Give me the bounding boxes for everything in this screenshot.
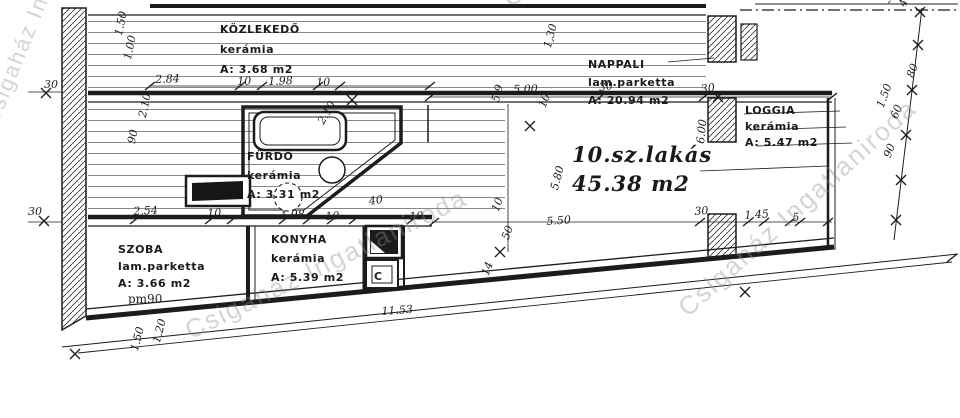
room-label-line: kerámia bbox=[745, 119, 818, 135]
room-label-line: KONYHA bbox=[271, 230, 344, 249]
dimension-label: 10 bbox=[325, 209, 340, 223]
dimension-label: 5 bbox=[792, 211, 800, 224]
room-label-line: FÜRDŐ bbox=[247, 147, 320, 166]
floor-plan: 10.sz.lakás 45.38 m2 Csigaház Ingatlanir… bbox=[0, 0, 960, 418]
dimension-label: 1.98 bbox=[280, 208, 305, 222]
dimension-label: 6.00 bbox=[694, 119, 709, 145]
pier bbox=[708, 16, 736, 62]
apartment-title: 10.sz.lakás 45.38 m2 bbox=[572, 140, 712, 198]
room-label-szoba: SZOBAlam.parkettaA: 3.66 m2 bbox=[118, 241, 205, 292]
room-label-line: SZOBA bbox=[118, 241, 205, 258]
apartment-area: 45.38 m2 bbox=[572, 169, 712, 198]
dimension-label: 10 bbox=[316, 76, 330, 89]
dimension-label: 10 bbox=[207, 206, 222, 220]
parapet-height-label: pm90 bbox=[128, 292, 162, 306]
right-diagonal-dim-line bbox=[894, 8, 922, 240]
bathtub-icon bbox=[254, 112, 346, 150]
left-exterior-wall bbox=[62, 8, 86, 330]
dimension-label: 30 bbox=[44, 78, 58, 91]
dimension-label: 2.84 bbox=[155, 72, 180, 86]
room-label-line: kerámia bbox=[220, 40, 300, 60]
room-label-line: A: 3.31 m2 bbox=[247, 185, 320, 204]
room-label-line: A: 3.66 m2 bbox=[118, 275, 205, 292]
room-label-line: LOGGIA bbox=[745, 103, 818, 119]
dimension-label: 30 bbox=[598, 79, 614, 94]
dimension-label: 1.45 bbox=[744, 207, 769, 222]
washbasin-icon bbox=[186, 176, 250, 206]
room-label-line: A: 5.39 m2 bbox=[271, 268, 344, 287]
dimension-label: 30 bbox=[28, 205, 42, 218]
room-label-line: NAPPALI bbox=[588, 56, 675, 74]
dimension-label: 30 bbox=[700, 81, 716, 96]
dimension-label: 11.53 bbox=[381, 303, 413, 318]
dimension-label: 5,00 bbox=[513, 82, 538, 96]
pier bbox=[708, 214, 736, 258]
room-label-line: A: 5.47 m2 bbox=[745, 135, 818, 151]
room-label-loggia: LOGGIAkerámiaA: 5.47 m2 bbox=[745, 103, 818, 151]
room-label-line: kerámia bbox=[247, 166, 320, 185]
room-label-line: KÖZLEKEDŐ bbox=[220, 20, 300, 40]
dimension-label: 1.98 bbox=[268, 74, 293, 88]
pier bbox=[708, 98, 736, 142]
dimension-label: 30 bbox=[694, 204, 709, 218]
room-label-line: kerámia bbox=[271, 249, 344, 268]
room-label-konyha: KONYHAkerámiaA: 5.39 m2 bbox=[271, 230, 344, 287]
convector-label: C bbox=[374, 270, 382, 283]
dimension-label: 10 bbox=[409, 209, 424, 223]
pier bbox=[741, 24, 757, 60]
room-label-furdo: FÜRDŐkerámiaA: 3.31 m2 bbox=[247, 147, 320, 204]
room-label-kozlekedo: KÖZLEKEDŐkerámiaA: 3.68 m2 bbox=[220, 20, 300, 80]
dimension-label: 40 bbox=[368, 193, 384, 208]
kitchen-sink-icon bbox=[366, 226, 402, 258]
room-label-line: A: 20.94 m2 bbox=[588, 92, 675, 110]
toilet-icon bbox=[319, 157, 345, 183]
room-label-line: lam.parketta bbox=[118, 258, 205, 275]
dimension-label: 5.50 bbox=[546, 213, 571, 228]
apartment-number: 10.sz.lakás bbox=[572, 140, 712, 169]
dimension-label: 10 bbox=[237, 75, 251, 88]
dimension-label: 2.54 bbox=[133, 204, 158, 218]
